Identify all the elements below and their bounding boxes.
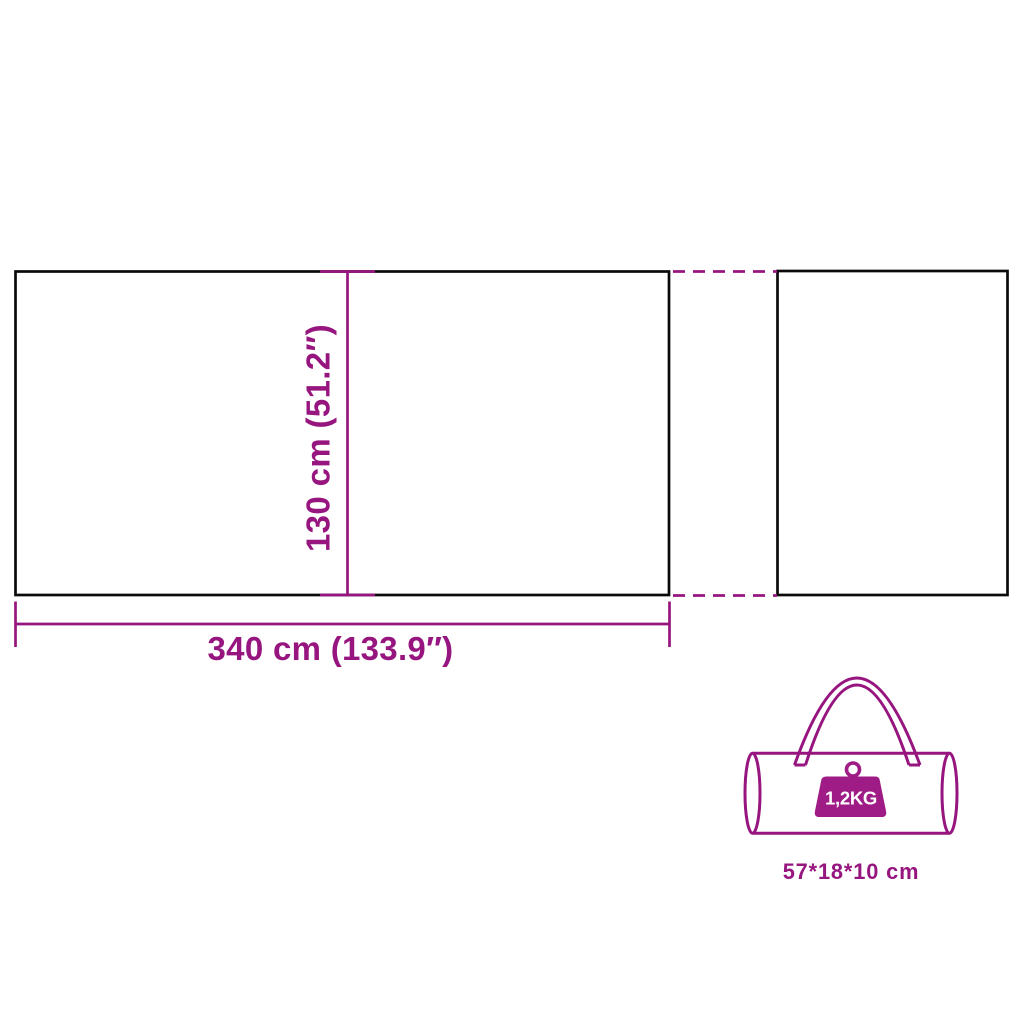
svg-text:130 cm (51.2″): 130 cm (51.2″) xyxy=(300,324,337,552)
svg-text:57*18*10 cm: 57*18*10 cm xyxy=(783,859,920,884)
svg-text:340 cm (133.9″): 340 cm (133.9″) xyxy=(208,630,454,667)
svg-text:1,2KG: 1,2KG xyxy=(825,788,877,809)
